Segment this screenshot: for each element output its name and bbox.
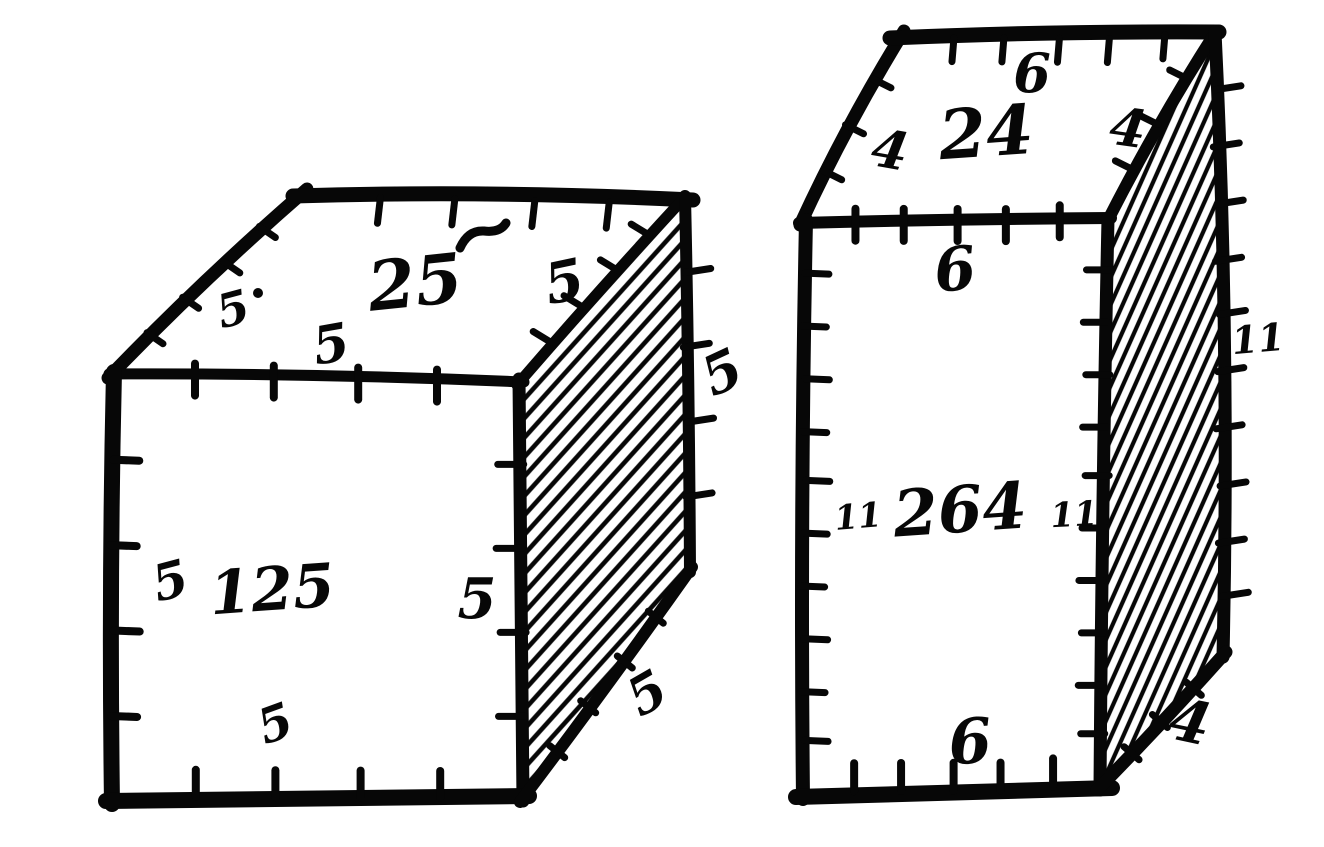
woodcut-figure: 5 25 5 5 5 5 125 5 5 5 — [0, 0, 1324, 847]
label-cube125-top-face-area: 25 — [363, 238, 466, 328]
label-box264-front-width-top: 6 — [931, 233, 980, 307]
cube-125-edge-top-back — [293, 194, 693, 200]
cube-125-edge-front-bottom — [106, 796, 529, 801]
label-box264-front-height-right: 11 — [1049, 494, 1098, 536]
label-box264-top-face-area: 24 — [935, 90, 1036, 176]
label-cube125-front-height-right: 5 — [458, 566, 497, 632]
label-box264-height-outer-right: 11 — [1230, 314, 1287, 363]
cube-125-edge-front-left — [111, 372, 114, 804]
box-264-edge-front-right — [1100, 219, 1108, 790]
label-box264-front-volume: 264 — [890, 468, 1029, 552]
label-box264-front-height-left: 11 — [833, 495, 884, 539]
box-264-drawing: 6 24 4 4 6 11 264 11 6 11 4 — [796, 31, 1286, 799]
label-cube125-front-volume: 125 — [207, 551, 337, 630]
woodcut-page: 5 25 5 5 5 5 125 5 5 5 — [0, 0, 1324, 847]
flourish-dot — [253, 288, 263, 298]
box-264-edge-top-back — [890, 32, 1219, 38]
box-264-edge-front-left — [802, 220, 806, 799]
cube-125-edge-front-right — [519, 379, 523, 801]
label-box264-front-width-bottom: 6 — [946, 704, 994, 780]
cube-125-edge-back-right — [685, 196, 690, 572]
label-cube125-depth-outer-right: 5 — [691, 335, 752, 409]
cube-125-drawing: 5 25 5 5 5 5 125 5 5 5 — [106, 189, 753, 804]
